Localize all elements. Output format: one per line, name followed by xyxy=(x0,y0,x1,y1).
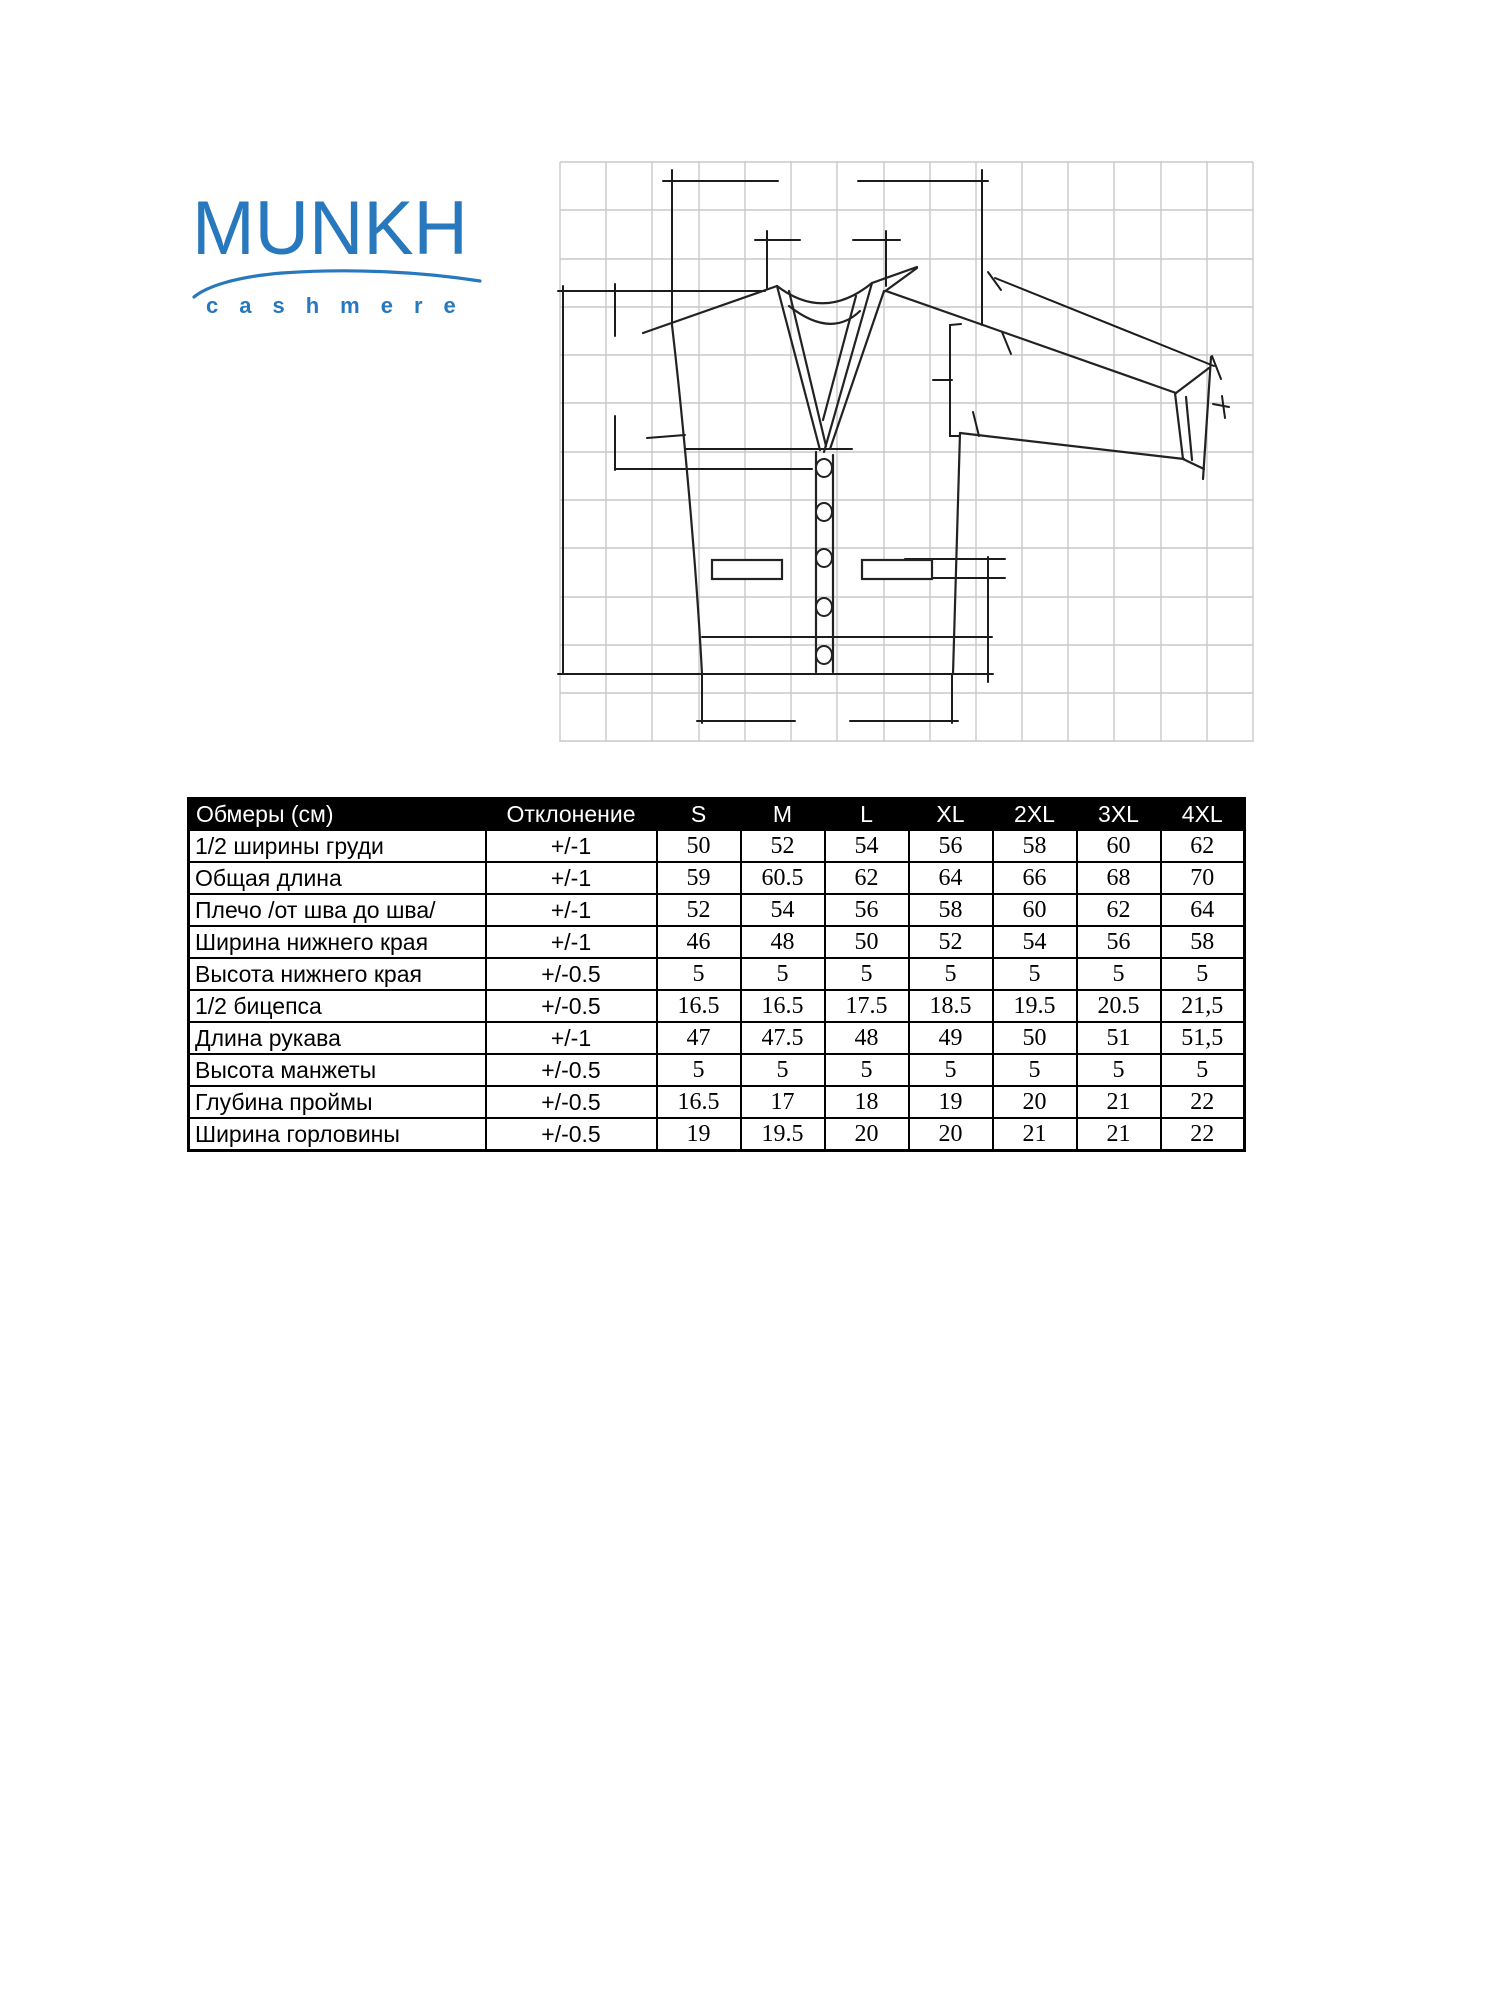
size-value-cell: 60.5 xyxy=(741,862,825,894)
garment-technical-drawing xyxy=(545,150,1270,765)
size-value-cell: 5 xyxy=(825,1054,909,1086)
table-row: Ширина нижнего края+/-146485052545658 xyxy=(189,926,1245,958)
table-row: Плечо /от шва до шва/+/-152545658606264 xyxy=(189,894,1245,926)
size-value-cell: 16.5 xyxy=(741,990,825,1022)
table-row: Высота нижнего края+/-0.55555555 xyxy=(189,958,1245,990)
tolerance-cell: +/-0.5 xyxy=(486,990,657,1022)
measure-label-cell: Высота манжеты xyxy=(189,1054,486,1086)
size-value-cell: 48 xyxy=(825,1022,909,1054)
size-value-cell: 16.5 xyxy=(657,990,741,1022)
col-header-size-3xl: 3XL xyxy=(1077,799,1161,831)
page: MUNKH cashmere xyxy=(0,0,1500,2000)
col-header-tolerance: Отклонение xyxy=(486,799,657,831)
brand-logo: MUNKH cashmere xyxy=(192,196,492,262)
table-row: Высота манжеты+/-0.55555555 xyxy=(189,1054,1245,1086)
size-value-cell: 22 xyxy=(1161,1118,1245,1151)
size-value-cell: 5 xyxy=(993,958,1077,990)
left-pocket xyxy=(712,560,782,579)
size-value-cell: 19.5 xyxy=(993,990,1077,1022)
button-icon xyxy=(816,459,832,477)
tolerance-cell: +/-0.5 xyxy=(486,1054,657,1086)
col-header-size-m: M xyxy=(741,799,825,831)
size-value-cell: 5 xyxy=(741,1054,825,1086)
cardigan-outline xyxy=(643,267,1211,674)
table-row: Длина рукава+/-14747.54849505151,5 xyxy=(189,1022,1245,1054)
size-value-cell: 5 xyxy=(1077,958,1161,990)
size-value-cell: 21 xyxy=(1077,1118,1161,1151)
size-value-cell: 62 xyxy=(825,862,909,894)
measure-label-cell: Плечо /от шва до шва/ xyxy=(189,894,486,926)
measure-label-cell: 1/2 бицепса xyxy=(189,990,486,1022)
size-table-body: 1/2 ширины груди+/-150525456586062Общая … xyxy=(189,830,1245,1151)
size-value-cell: 51 xyxy=(1077,1022,1161,1054)
size-value-cell: 21 xyxy=(1077,1086,1161,1118)
col-header-size-s: S xyxy=(657,799,741,831)
sleeve-top-edge xyxy=(983,325,1176,393)
button-row xyxy=(816,459,832,664)
tolerance-cell: +/-0.5 xyxy=(486,958,657,990)
col-header-size-l: L xyxy=(825,799,909,831)
size-value-cell: 5 xyxy=(909,958,993,990)
size-value-cell: 21,5 xyxy=(1161,990,1245,1022)
neckband-left-inner xyxy=(789,291,826,446)
col-header-size-xl: XL xyxy=(909,799,993,831)
tolerance-cell: +/-1 xyxy=(486,830,657,862)
size-value-cell: 5 xyxy=(1161,1054,1245,1086)
size-value-cell: 20 xyxy=(909,1118,993,1151)
neckband-left-outer xyxy=(777,286,820,450)
size-value-cell: 21 xyxy=(993,1118,1077,1151)
size-value-cell: 46 xyxy=(657,926,741,958)
button-icon xyxy=(816,549,832,567)
size-value-cell: 56 xyxy=(1077,926,1161,958)
size-value-cell: 5 xyxy=(1161,958,1245,990)
size-value-cell: 56 xyxy=(825,894,909,926)
col-header-size-4xl: 4XL xyxy=(1161,799,1245,831)
size-value-cell: 54 xyxy=(825,830,909,862)
brand-subtitle: cashmere xyxy=(206,293,477,319)
size-value-cell: 18 xyxy=(825,1086,909,1118)
size-value-cell: 62 xyxy=(1161,830,1245,862)
table-row: 1/2 ширины груди+/-150525456586062 xyxy=(189,830,1245,862)
size-value-cell: 66 xyxy=(993,862,1077,894)
cuff-seam-inner xyxy=(1186,397,1192,460)
size-value-cell: 5 xyxy=(657,1054,741,1086)
header-row: Обмеры (см) Отклонение S M L XL 2XL 3XL … xyxy=(189,799,1245,831)
table-row: Глубина проймы+/-0.516.5171819202122 xyxy=(189,1086,1245,1118)
size-value-cell: 62 xyxy=(1077,894,1161,926)
size-value-cell: 17.5 xyxy=(825,990,909,1022)
size-value-cell: 49 xyxy=(909,1022,993,1054)
size-value-cell: 47 xyxy=(657,1022,741,1054)
size-value-cell: 58 xyxy=(909,894,993,926)
size-table-header: Обмеры (см) Отклонение S M L XL 2XL 3XL … xyxy=(189,799,1245,831)
size-value-cell: 50 xyxy=(825,926,909,958)
table-row: Ширина горловины+/-0.51919.52020212122 xyxy=(189,1118,1245,1151)
measure-label-cell: Высота нижнего края xyxy=(189,958,486,990)
button-icon xyxy=(816,646,832,664)
size-value-cell: 5 xyxy=(1077,1054,1161,1086)
size-value-cell: 50 xyxy=(993,1022,1077,1054)
sleeve-bottom-edge xyxy=(960,433,1184,459)
tolerance-cell: +/-1 xyxy=(486,926,657,958)
size-table: Обмеры (см) Отклонение S M L XL 2XL 3XL … xyxy=(187,797,1246,1152)
size-value-cell: 20 xyxy=(825,1118,909,1151)
size-value-cell: 58 xyxy=(1161,926,1245,958)
size-value-cell: 20.5 xyxy=(1077,990,1161,1022)
button-icon xyxy=(816,503,832,521)
size-value-cell: 59 xyxy=(657,862,741,894)
size-value-cell: 5 xyxy=(909,1054,993,1086)
brand-name: MUNKH xyxy=(192,196,489,262)
size-value-cell: 50 xyxy=(657,830,741,862)
measure-label-cell: Ширина горловины xyxy=(189,1118,486,1151)
size-value-cell: 58 xyxy=(993,830,1077,862)
col-header-measures: Обмеры (см) xyxy=(189,799,486,831)
size-value-cell: 52 xyxy=(909,926,993,958)
size-value-cell: 54 xyxy=(993,926,1077,958)
measure-label-cell: Длина рукава xyxy=(189,1022,486,1054)
size-value-cell: 19 xyxy=(657,1118,741,1151)
col-header-size-2xl: 2XL xyxy=(993,799,1077,831)
size-value-cell: 60 xyxy=(993,894,1077,926)
tolerance-cell: +/-1 xyxy=(486,862,657,894)
size-value-cell: 20 xyxy=(993,1086,1077,1118)
size-value-cell: 16.5 xyxy=(657,1086,741,1118)
collar-tip xyxy=(872,267,917,292)
size-value-cell: 19.5 xyxy=(741,1118,825,1151)
size-value-cell: 64 xyxy=(1161,894,1245,926)
cuff-bottom-edge xyxy=(1183,459,1204,469)
size-value-cell: 18.5 xyxy=(909,990,993,1022)
table-row: Общая длина+/-15960.56264666870 xyxy=(189,862,1245,894)
size-value-cell: 5 xyxy=(825,958,909,990)
size-value-cell: 48 xyxy=(741,926,825,958)
table-row: 1/2 бицепса+/-0.516.516.517.518.519.520.… xyxy=(189,990,1245,1022)
size-value-cell: 19 xyxy=(909,1086,993,1118)
tolerance-cell: +/-0.5 xyxy=(486,1086,657,1118)
size-value-cell: 22 xyxy=(1161,1086,1245,1118)
right-pocket xyxy=(862,560,932,579)
size-value-cell: 5 xyxy=(741,958,825,990)
size-value-cell: 47.5 xyxy=(741,1022,825,1054)
measure-label-cell: Общая длина xyxy=(189,862,486,894)
size-value-cell: 5 xyxy=(657,958,741,990)
grid-background xyxy=(560,162,1253,742)
size-value-cell: 17 xyxy=(741,1086,825,1118)
size-value-cell: 56 xyxy=(909,830,993,862)
neckband-right-outer xyxy=(824,283,872,452)
tolerance-cell: +/-0.5 xyxy=(486,1118,657,1151)
measure-label-cell: 1/2 ширины груди xyxy=(189,830,486,862)
button-icon xyxy=(816,598,832,616)
size-value-cell: 52 xyxy=(741,830,825,862)
left-shoulder-line xyxy=(643,286,777,333)
measure-label-cell: Ширина нижнего края xyxy=(189,926,486,958)
size-value-cell: 51,5 xyxy=(1161,1022,1245,1054)
size-value-cell: 52 xyxy=(657,894,741,926)
cuff-top-edge xyxy=(1176,368,1209,393)
size-value-cell: 54 xyxy=(741,894,825,926)
size-value-cell: 68 xyxy=(1077,862,1161,894)
size-value-cell: 5 xyxy=(993,1054,1077,1086)
size-value-cell: 60 xyxy=(1077,830,1161,862)
dimension-lines xyxy=(558,170,1229,723)
size-value-cell: 70 xyxy=(1161,862,1245,894)
right-shoulder-line xyxy=(886,291,983,325)
measure-label-cell: Глубина проймы xyxy=(189,1086,486,1118)
tolerance-cell: +/-1 xyxy=(486,894,657,926)
size-value-cell: 64 xyxy=(909,862,993,894)
tolerance-cell: +/-1 xyxy=(486,1022,657,1054)
